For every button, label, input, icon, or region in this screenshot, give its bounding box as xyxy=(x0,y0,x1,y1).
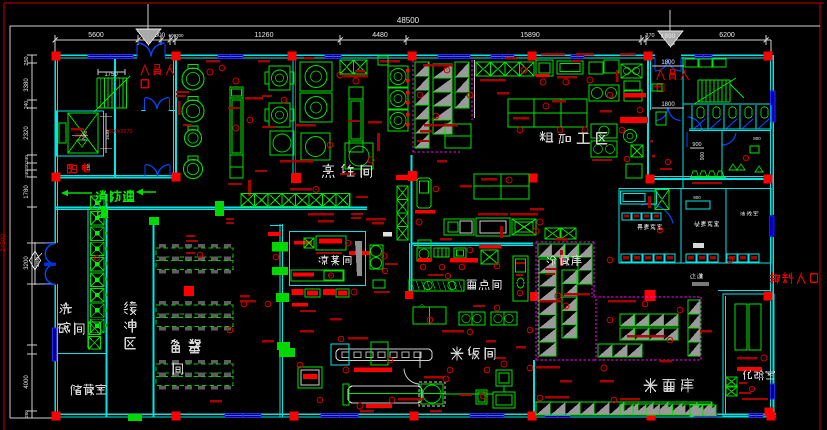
svg-text:11260: 11260 xyxy=(255,32,274,39)
svg-text:1780: 1780 xyxy=(24,185,30,199)
svg-text:48500: 48500 xyxy=(397,16,420,25)
svg-text:250: 250 xyxy=(24,410,29,418)
svg-text:3200: 3200 xyxy=(24,256,30,270)
svg-text:310: 310 xyxy=(24,163,29,171)
svg-text:240: 240 xyxy=(24,155,29,163)
svg-text:15890: 15890 xyxy=(520,32,540,39)
svg-text:240: 240 xyxy=(24,170,29,178)
svg-text:3380: 3380 xyxy=(24,78,30,92)
svg-text:5600: 5600 xyxy=(88,32,104,39)
svg-text:1800: 1800 xyxy=(661,60,675,66)
svg-text:600300: 600300 xyxy=(168,33,184,38)
svg-text:4480: 4480 xyxy=(372,32,388,39)
svg-text:250: 250 xyxy=(24,56,30,65)
svg-text:900: 900 xyxy=(700,152,706,161)
svg-text:800: 800 xyxy=(753,136,761,141)
svg-text:900: 900 xyxy=(693,195,701,200)
svg-text:150: 150 xyxy=(86,163,91,171)
svg-text:1630: 1630 xyxy=(105,129,110,140)
svg-text:2320: 2320 xyxy=(24,126,30,140)
svg-text:370: 370 xyxy=(645,33,654,39)
svg-text:1890: 1890 xyxy=(661,33,676,40)
svg-text:4000: 4000 xyxy=(24,375,30,389)
svg-text:24500: 24500 xyxy=(0,234,7,252)
svg-text:1800: 1800 xyxy=(661,102,675,108)
svg-text:900: 900 xyxy=(692,142,701,148)
svg-text:1750: 1750 xyxy=(104,72,118,78)
svg-text:6200: 6200 xyxy=(719,32,735,39)
svg-text:240: 240 xyxy=(24,101,30,110)
